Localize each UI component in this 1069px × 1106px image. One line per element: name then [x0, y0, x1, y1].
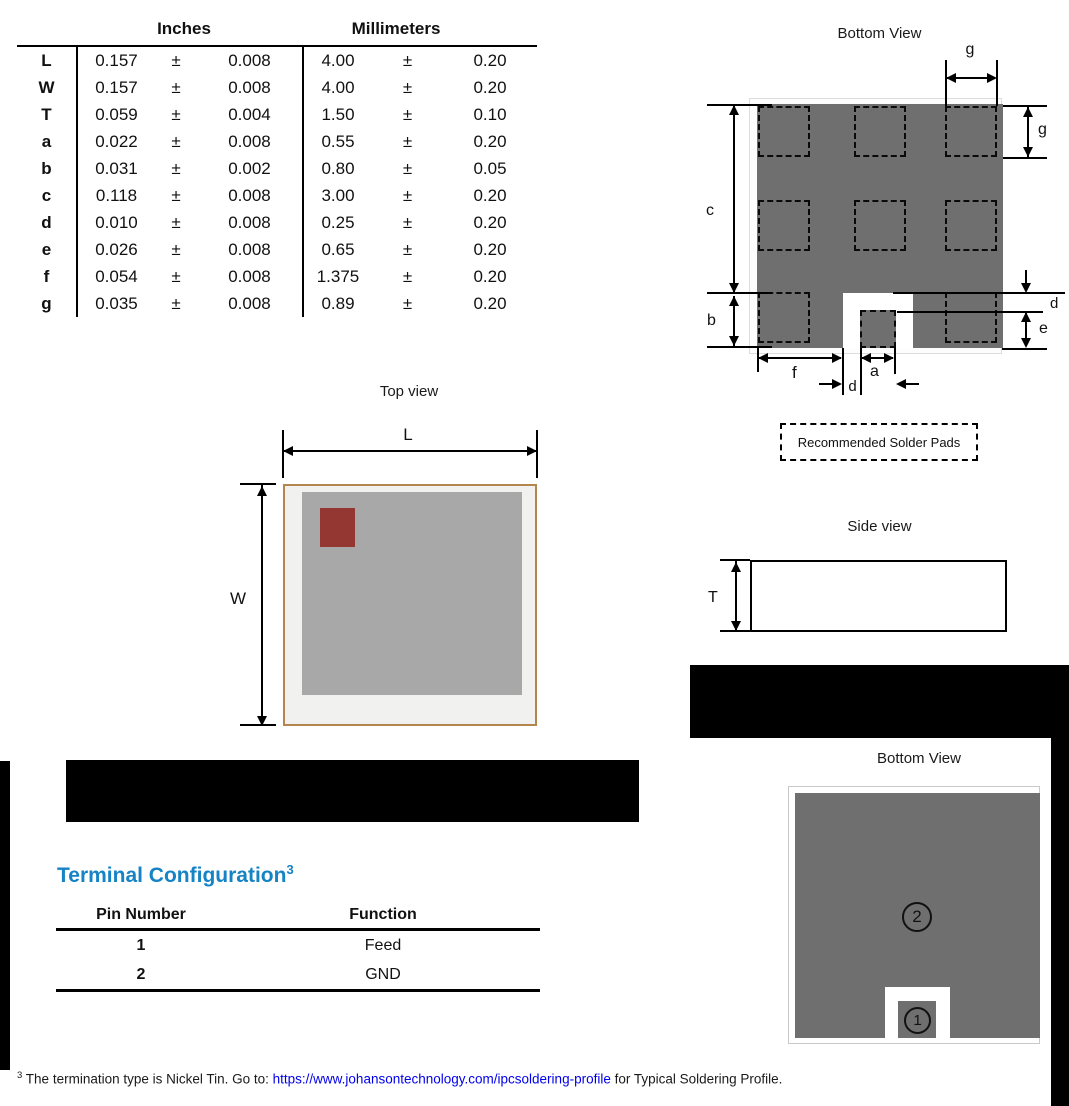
- terminal-header-row: Pin Number Function: [56, 902, 540, 930]
- plus-minus: ±: [372, 290, 443, 317]
- mm-value: 1.375: [303, 263, 372, 290]
- pin-number-header: Pin Number: [56, 902, 226, 930]
- dim-label: f: [17, 263, 77, 290]
- mm-value: 0.80: [303, 155, 372, 182]
- dim-label-g-top: g: [958, 42, 982, 58]
- dim-label-f: f: [792, 364, 797, 381]
- table-row: a0.022±0.0080.55±0.20: [17, 128, 537, 155]
- tick: [1003, 157, 1047, 159]
- arrowhead: [1021, 312, 1031, 322]
- footnote: 3 The termination type is Nickel Tin. Go…: [17, 1070, 782, 1087]
- inch-value: 0.022: [77, 128, 155, 155]
- solder-pad: [854, 106, 906, 157]
- inch-tolerance: 0.008: [197, 290, 303, 317]
- arrowhead: [283, 446, 293, 456]
- mm-tolerance: 0.20: [443, 74, 537, 101]
- plus-minus: ±: [155, 128, 197, 155]
- pin-number: 1: [56, 930, 226, 961]
- dim-label: g: [17, 290, 77, 317]
- datasheet-page: Inches Millimeters L0.157±0.0084.00±0.20…: [0, 0, 1069, 1106]
- plus-minus: ±: [372, 182, 443, 209]
- arrowhead: [729, 105, 739, 115]
- plus-minus: ±: [372, 155, 443, 182]
- mm-value: 4.00: [303, 46, 372, 74]
- corner-cell: [17, 12, 77, 46]
- mm-value: 0.65: [303, 236, 372, 263]
- millimeters-header: Millimeters: [303, 12, 537, 46]
- feed-pad: [860, 310, 896, 348]
- tick: [707, 104, 772, 106]
- arrowhead: [758, 353, 768, 363]
- inch-value: 0.118: [77, 182, 155, 209]
- pin-2-marker: 2: [902, 902, 932, 932]
- tick: [1002, 348, 1047, 350]
- inch-tolerance: 0.008: [197, 263, 303, 290]
- dim-line: [906, 383, 919, 385]
- arrowhead: [729, 283, 739, 293]
- tick: [996, 60, 998, 106]
- mm-tolerance: 0.05: [443, 155, 537, 182]
- mm-tolerance: 0.10: [443, 101, 537, 128]
- inch-value: 0.157: [77, 74, 155, 101]
- inch-value: 0.035: [77, 290, 155, 317]
- mm-value: 0.25: [303, 209, 372, 236]
- redaction-bar-right: [1051, 665, 1069, 1106]
- arrowhead: [1021, 338, 1031, 348]
- arrowhead: [257, 716, 267, 726]
- arrowhead: [729, 336, 739, 346]
- table-row: W0.157±0.0084.00±0.20: [17, 74, 537, 101]
- inch-tolerance: 0.008: [197, 182, 303, 209]
- dim-label-e: e: [1039, 321, 1048, 337]
- plus-minus: ±: [372, 263, 443, 290]
- inch-value: 0.054: [77, 263, 155, 290]
- dimensions-table: Inches Millimeters L0.157±0.0084.00±0.20…: [17, 12, 537, 317]
- tick: [707, 292, 772, 294]
- dim-label-w: W: [230, 590, 246, 607]
- plus-minus: ±: [155, 263, 197, 290]
- inch-tolerance: 0.002: [197, 155, 303, 182]
- plus-minus: ±: [372, 209, 443, 236]
- arrowhead: [527, 446, 537, 456]
- table-row: d0.010±0.0080.25±0.20: [17, 209, 537, 236]
- mm-value: 4.00: [303, 74, 372, 101]
- table-row: c0.118±0.0083.00±0.20: [17, 182, 537, 209]
- tick: [945, 60, 947, 106]
- dim-label-t: T: [708, 590, 718, 606]
- arrowhead: [731, 562, 741, 572]
- inch-value: 0.010: [77, 209, 155, 236]
- dim-label: T: [17, 101, 77, 128]
- mm-tolerance: 0.20: [443, 209, 537, 236]
- side-view-title: Side view: [690, 518, 1069, 535]
- function-header: Function: [226, 902, 540, 930]
- dim-line: [819, 383, 832, 385]
- top-view-diagram: Top view L W: [230, 378, 588, 748]
- redaction-bar-left: [0, 761, 10, 1070]
- plus-minus: ±: [372, 128, 443, 155]
- soldering-profile-link[interactable]: https://www.johansontechnology.com/ipcso…: [273, 1072, 611, 1087]
- dim-line: [261, 484, 263, 726]
- dim-label-c: c: [706, 203, 714, 219]
- terminal-configuration-table: Pin Number Function 1 Feed 2 GND: [56, 902, 540, 992]
- inch-value: 0.031: [77, 155, 155, 182]
- inch-value: 0.157: [77, 46, 155, 74]
- mm-tolerance: 0.20: [443, 128, 537, 155]
- dim-label: a: [17, 128, 77, 155]
- dim-line: [759, 357, 841, 359]
- plus-minus: ±: [155, 46, 197, 74]
- dim-label-d-right: d: [1050, 296, 1058, 311]
- arrowhead: [946, 73, 956, 83]
- dim-label-b: b: [707, 313, 716, 329]
- plus-minus: ±: [155, 236, 197, 263]
- mm-tolerance: 0.20: [443, 236, 537, 263]
- plus-minus: ±: [155, 209, 197, 236]
- solder-pad: [945, 200, 997, 251]
- arrowhead: [729, 296, 739, 306]
- inch-value: 0.059: [77, 101, 155, 128]
- mm-value: 3.00: [303, 182, 372, 209]
- table-row: e0.026±0.0080.65±0.20: [17, 236, 537, 263]
- arrowhead: [832, 379, 842, 389]
- table-row: b0.031±0.0020.80±0.05: [17, 155, 537, 182]
- footnote-text-post: for Typical Soldering Profile.: [611, 1072, 783, 1087]
- solder-pad: [758, 106, 810, 157]
- pin-number: 2: [56, 960, 226, 991]
- dim-label: d: [17, 209, 77, 236]
- arrowhead: [832, 353, 842, 363]
- pin-1-marker: 1: [904, 1007, 931, 1034]
- top-view-title: Top view: [230, 383, 588, 400]
- dim-label: L: [17, 46, 77, 74]
- arrowhead: [731, 621, 741, 631]
- mm-value: 0.55: [303, 128, 372, 155]
- arrowhead: [1023, 147, 1033, 157]
- table-row: T0.059±0.0041.50±0.10: [17, 101, 537, 128]
- tick: [894, 348, 896, 374]
- plus-minus: ±: [372, 236, 443, 263]
- dim-label-d-bottom: d: [845, 379, 860, 394]
- tick: [707, 346, 772, 348]
- dimensions-header-row: Inches Millimeters: [17, 12, 537, 46]
- arrowhead: [257, 486, 267, 496]
- dim-line: [893, 292, 1065, 294]
- bottom-view-title: Bottom View: [690, 25, 1069, 42]
- redaction-box: [66, 760, 639, 822]
- terminal-view-diagram: Bottom View 1 2: [788, 745, 1050, 1050]
- heading-footnote-ref: 3: [286, 862, 293, 877]
- arrowhead: [987, 73, 997, 83]
- plus-minus: ±: [372, 101, 443, 128]
- dim-label: b: [17, 155, 77, 182]
- redaction-box: [690, 665, 1069, 738]
- mm-tolerance: 0.20: [443, 263, 537, 290]
- inches-header: Inches: [77, 12, 303, 46]
- heading-text: Terminal Configuration: [57, 864, 286, 887]
- inch-tolerance: 0.004: [197, 101, 303, 128]
- arrowhead: [896, 379, 906, 389]
- footnote-text-pre: The termination type is Nickel Tin. Go t…: [22, 1072, 272, 1087]
- table-row: L0.157±0.0084.00±0.20: [17, 46, 537, 74]
- tick: [842, 348, 844, 395]
- dim-label: c: [17, 182, 77, 209]
- bottom-view-diagram: Bottom View c b g: [690, 20, 1069, 435]
- solder-pads-note: Recommended Solder Pads: [780, 423, 978, 461]
- tick: [240, 483, 276, 485]
- inch-tolerance: 0.008: [197, 46, 303, 74]
- solder-pad: [758, 200, 810, 251]
- plus-minus: ±: [155, 182, 197, 209]
- inch-tolerance: 0.008: [197, 236, 303, 263]
- inch-tolerance: 0.008: [197, 74, 303, 101]
- plus-minus: ±: [372, 46, 443, 74]
- pin-function: Feed: [226, 930, 540, 961]
- mm-tolerance: 0.20: [443, 290, 537, 317]
- plus-minus: ±: [155, 155, 197, 182]
- solder-pad: [854, 200, 906, 251]
- table-row: 2 GND: [56, 960, 540, 991]
- terminal-configuration-heading: Terminal Configuration3: [57, 862, 294, 888]
- table-row: g0.035±0.0080.89±0.20: [17, 290, 537, 317]
- solder-pad: [758, 292, 810, 343]
- dim-label: W: [17, 74, 77, 101]
- inch-tolerance: 0.008: [197, 209, 303, 236]
- mm-value: 0.89: [303, 290, 372, 317]
- dim-label-g-right: g: [1038, 122, 1047, 138]
- solder-pad: [945, 292, 997, 343]
- plus-minus: ±: [155, 290, 197, 317]
- mm-value: 1.50: [303, 101, 372, 128]
- arrowhead: [1023, 107, 1033, 117]
- plus-minus: ±: [155, 101, 197, 128]
- solder-pad: [945, 106, 997, 157]
- polarity-mark: [320, 508, 355, 547]
- dim-label-l: L: [398, 426, 418, 443]
- plus-minus: ±: [372, 74, 443, 101]
- mm-tolerance: 0.20: [443, 46, 537, 74]
- arrowhead: [861, 353, 871, 363]
- terminal-view-title: Bottom View: [788, 750, 1050, 767]
- mm-tolerance: 0.20: [443, 182, 537, 209]
- chip-side-body: [750, 560, 1007, 632]
- dim-label-a: a: [870, 364, 879, 380]
- inch-value: 0.026: [77, 236, 155, 263]
- dim-line: [283, 450, 537, 452]
- dim-line: [733, 105, 735, 293]
- dim-label: e: [17, 236, 77, 263]
- side-view-diagram: Side view T: [690, 505, 1069, 645]
- arrowhead: [884, 353, 894, 363]
- table-row: 1 Feed: [56, 930, 540, 961]
- inch-tolerance: 0.008: [197, 128, 303, 155]
- pin-function: GND: [226, 960, 540, 991]
- table-row: f0.054±0.0081.375±0.20: [17, 263, 537, 290]
- plus-minus: ±: [155, 74, 197, 101]
